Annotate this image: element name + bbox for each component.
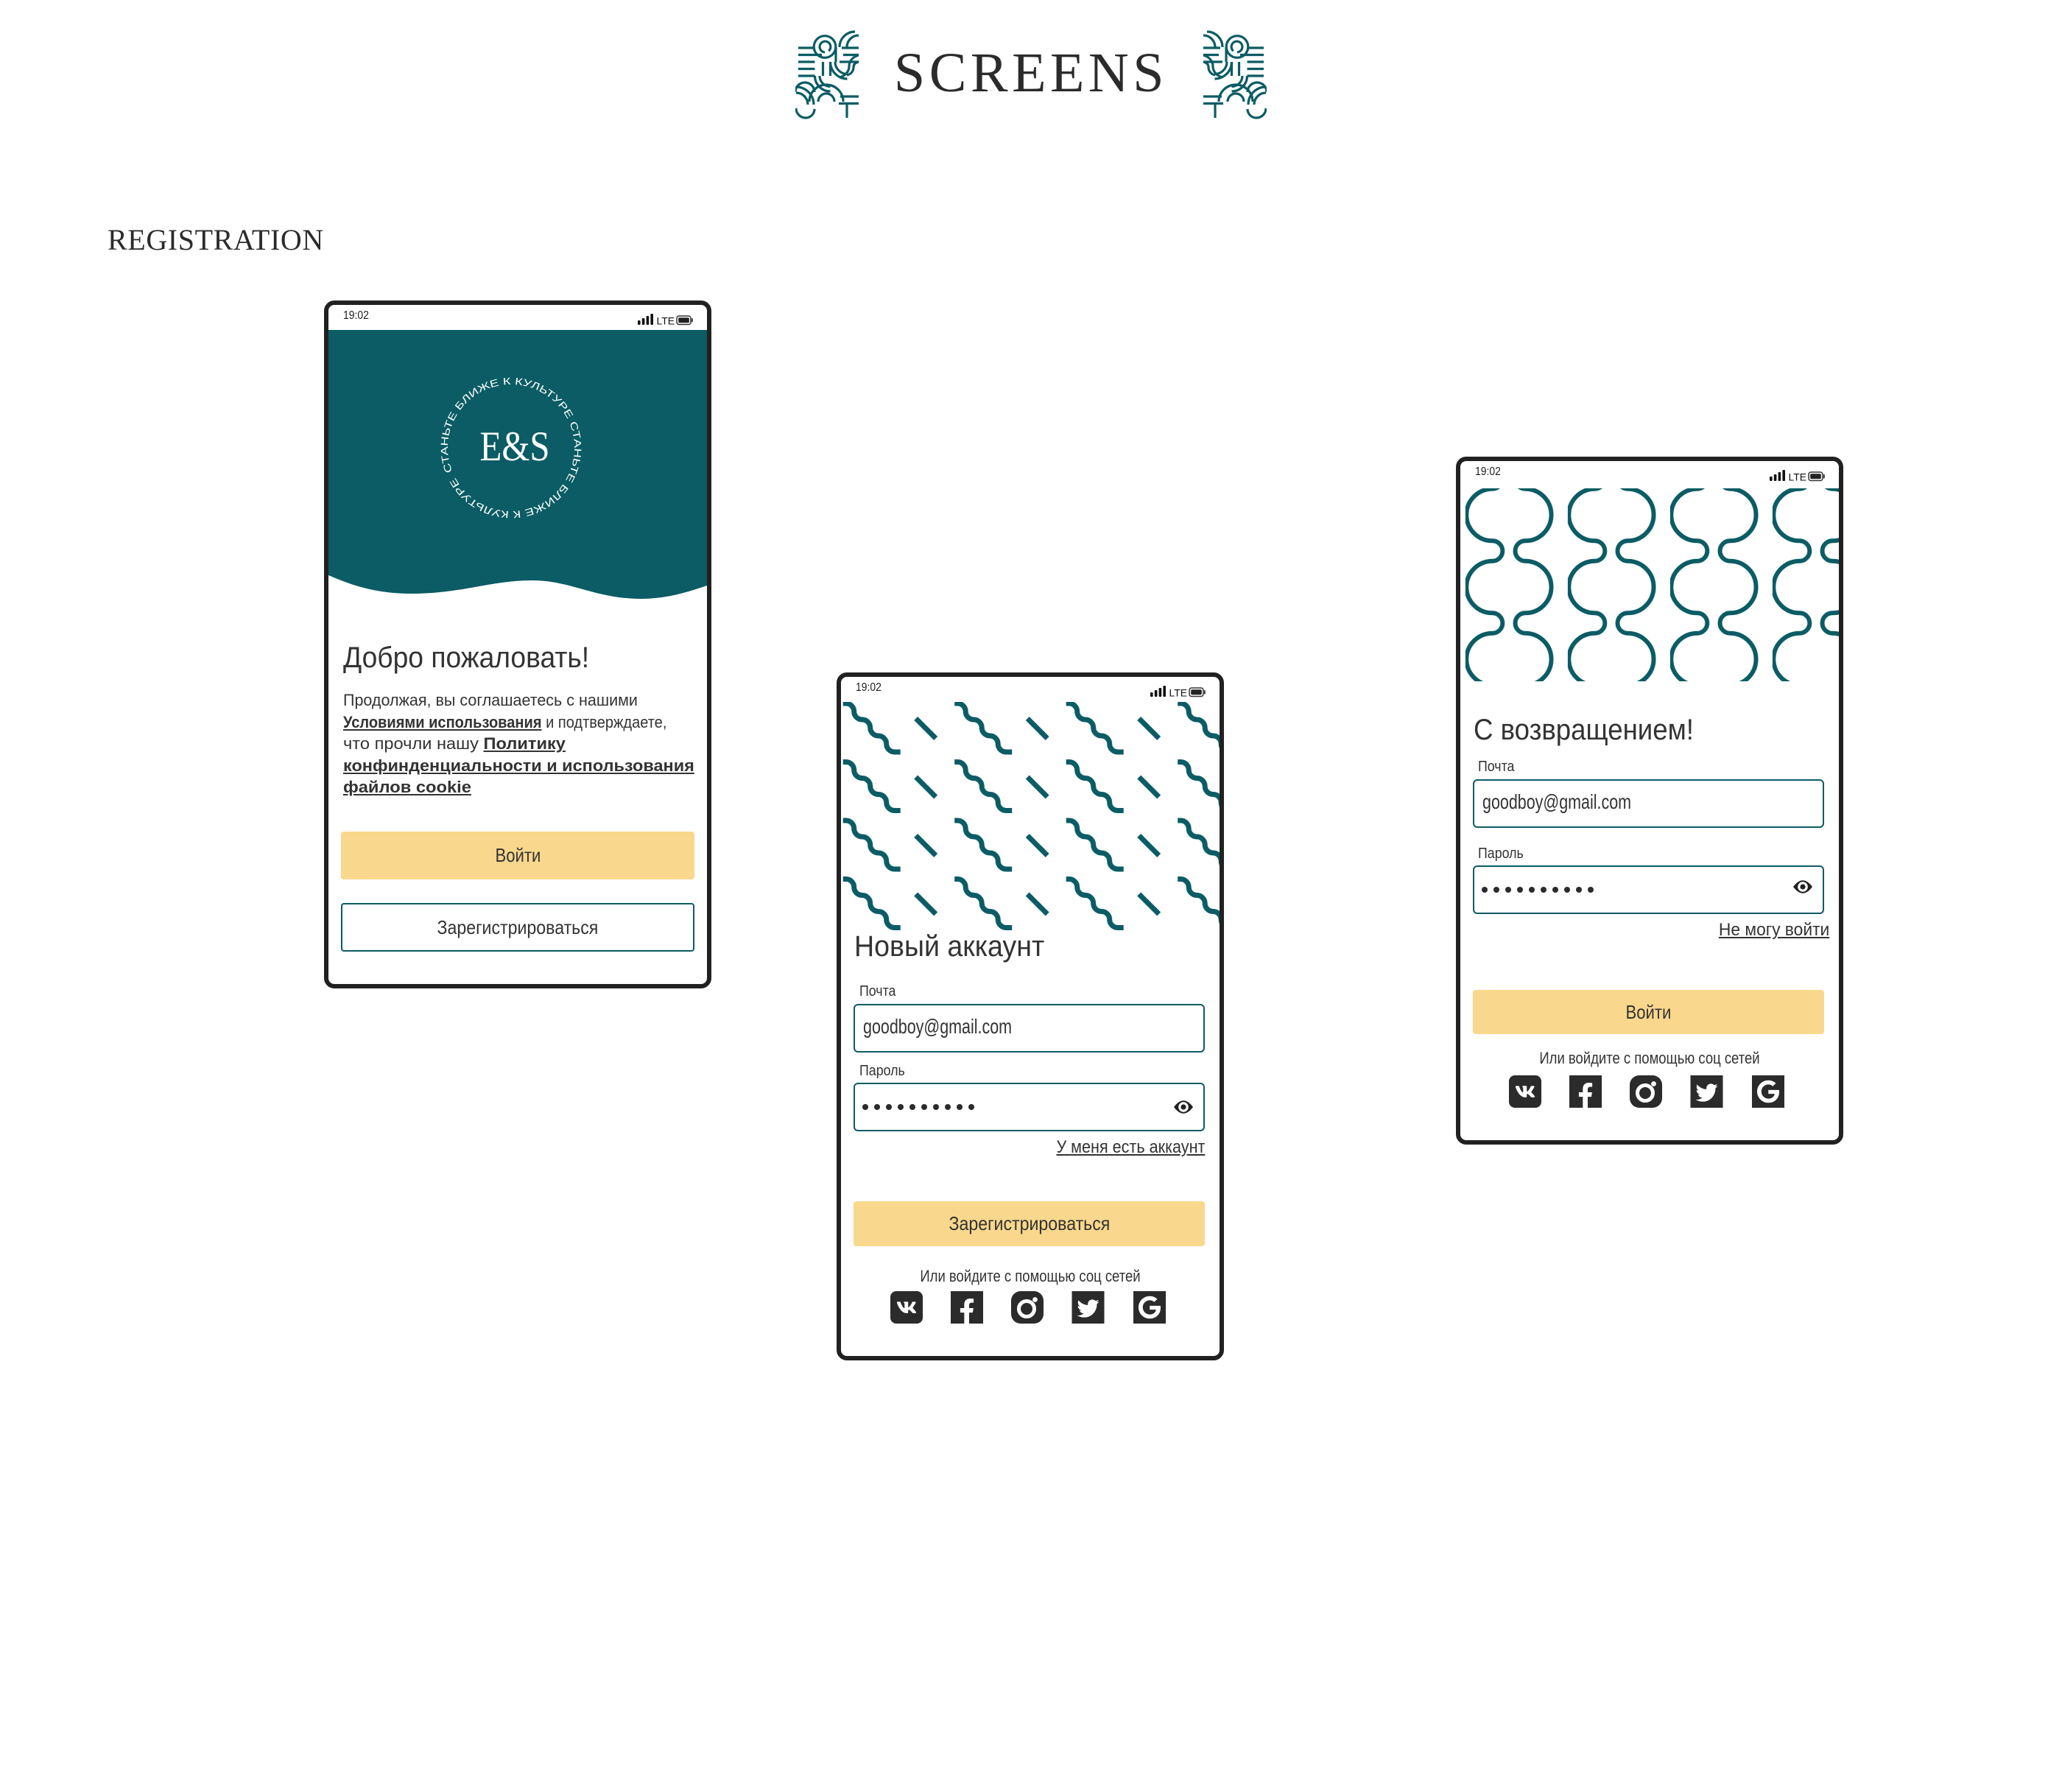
svg-text:E&S: E&S bbox=[480, 424, 550, 470]
